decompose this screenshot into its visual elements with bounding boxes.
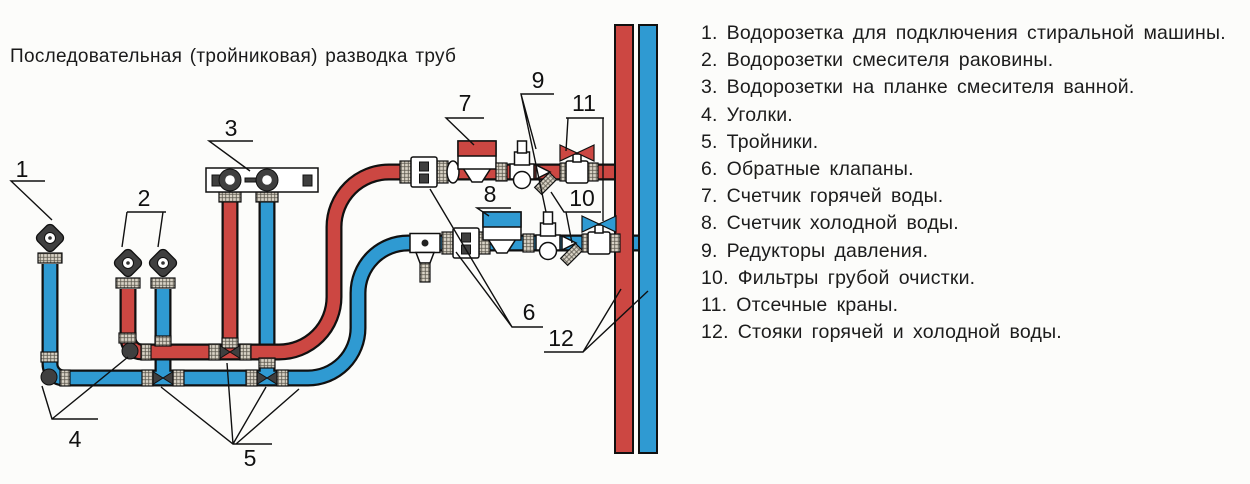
legend-item-number: 5. [701,131,718,154]
legend-item-label: Отсечные краны. [736,294,898,317]
svg-text:8: 8 [484,181,497,207]
legend-item-number: 6. [701,158,718,181]
union-fitting [447,161,459,183]
legend-item-number: 3. [701,76,718,99]
legend-item: 5.Тройники. [701,129,1246,156]
page: Последовательная (тройниковая) разводка … [0,0,1250,484]
bath-mixer-plate-icon [206,168,318,202]
svg-text:9: 9 [532,67,545,93]
legend-item: 12.Стояки горячей и холодной воды. [701,319,1246,346]
legend-item-label: Счетчик холодной воды. [727,212,959,235]
legend-item-number: 1. [701,22,718,45]
legend: 1.Водорозетка для подключения стиральной… [701,20,1246,346]
drain-valve-icon [410,234,440,283]
pressure-reducer-hot-icon [510,141,534,189]
legend-item-label: Счетчик горячей воды. [727,185,944,208]
plumbing-diagram: 1 2 3 4 5 6 7 8 [0,0,695,484]
sink-mixer-outlet-cold-icon [147,247,178,288]
legend-item-label: Обратные клапаны. [727,158,914,181]
legend-item: 9.Редукторы давления. [701,238,1246,265]
callout-2: 2 [122,185,166,247]
washing-machine-outlet-icon [34,222,65,263]
legend-item-number: 7. [701,185,718,208]
shutoff-valve-cold-icon [582,216,620,254]
svg-text:12: 12 [548,325,574,351]
legend-item: 11.Отсечные краны. [701,292,1246,319]
coupling [523,234,534,252]
legend-item-label: Водорозетки смесителя раковины. [727,49,1054,72]
legend-item-number: 12. [701,321,729,344]
legend-item: 2.Водорозетки смесителя раковины. [701,47,1246,74]
sink-mixer-outlet-hot-icon [112,247,143,288]
callout-6: 6 [430,189,543,327]
legend-item-label: Фильтры грубой очистки. [738,267,976,290]
svg-text:4: 4 [69,426,82,452]
legend-item-number: 8. [701,212,718,235]
svg-text:7: 7 [459,90,472,116]
legend-item-label: Тройники. [727,131,819,154]
legend-item-number: 11. [701,294,727,317]
legend-item: 10.Фильтры грубой очистки. [701,265,1246,292]
legend-item: 3.Водорозетки на планке смесителя ванной… [701,74,1246,101]
svg-text:1: 1 [16,156,29,182]
callout-1: 1 [11,156,52,220]
legend-item: 1.Водорозетка для подключения стиральной… [701,20,1246,47]
callout-8: 8 [477,181,511,216]
callout-3: 3 [209,115,253,171]
legend-item-label: Уголки. [727,104,793,127]
svg-text:2: 2 [138,185,151,211]
check-valve-hot-icon [400,157,448,187]
svg-text:5: 5 [244,445,257,471]
svg-text:10: 10 [569,185,595,211]
legend-item: 7.Счетчик горячей воды. [701,183,1246,210]
legend-item-number: 2. [701,49,718,72]
svg-text:11: 11 [572,90,596,116]
legend-item: 8.Счетчик холодной воды. [701,210,1246,237]
legend-item-label: Водорозетки на планке смесителя ванной. [727,76,1135,99]
legend-item: 4.Уголки. [701,102,1246,129]
callout-7: 7 [446,90,484,145]
svg-text:3: 3 [225,115,238,141]
legend-item-label: Редукторы давления. [727,240,929,263]
svg-text:6: 6 [523,299,536,325]
legend-item: 6.Обратные клапаны. [701,156,1246,183]
legend-item-label: Водорозетка для подключения стиральной м… [727,22,1226,45]
legend-item-label: Стояки горячей и холодной воды. [738,321,1062,344]
legend-item-number: 4. [701,104,718,127]
legend-item-number: 9. [701,240,718,263]
cold-riser-pipe [639,25,657,453]
legend-item-number: 10. [701,267,729,290]
coupling [496,163,507,181]
pressure-reducer-cold-icon [536,212,560,260]
